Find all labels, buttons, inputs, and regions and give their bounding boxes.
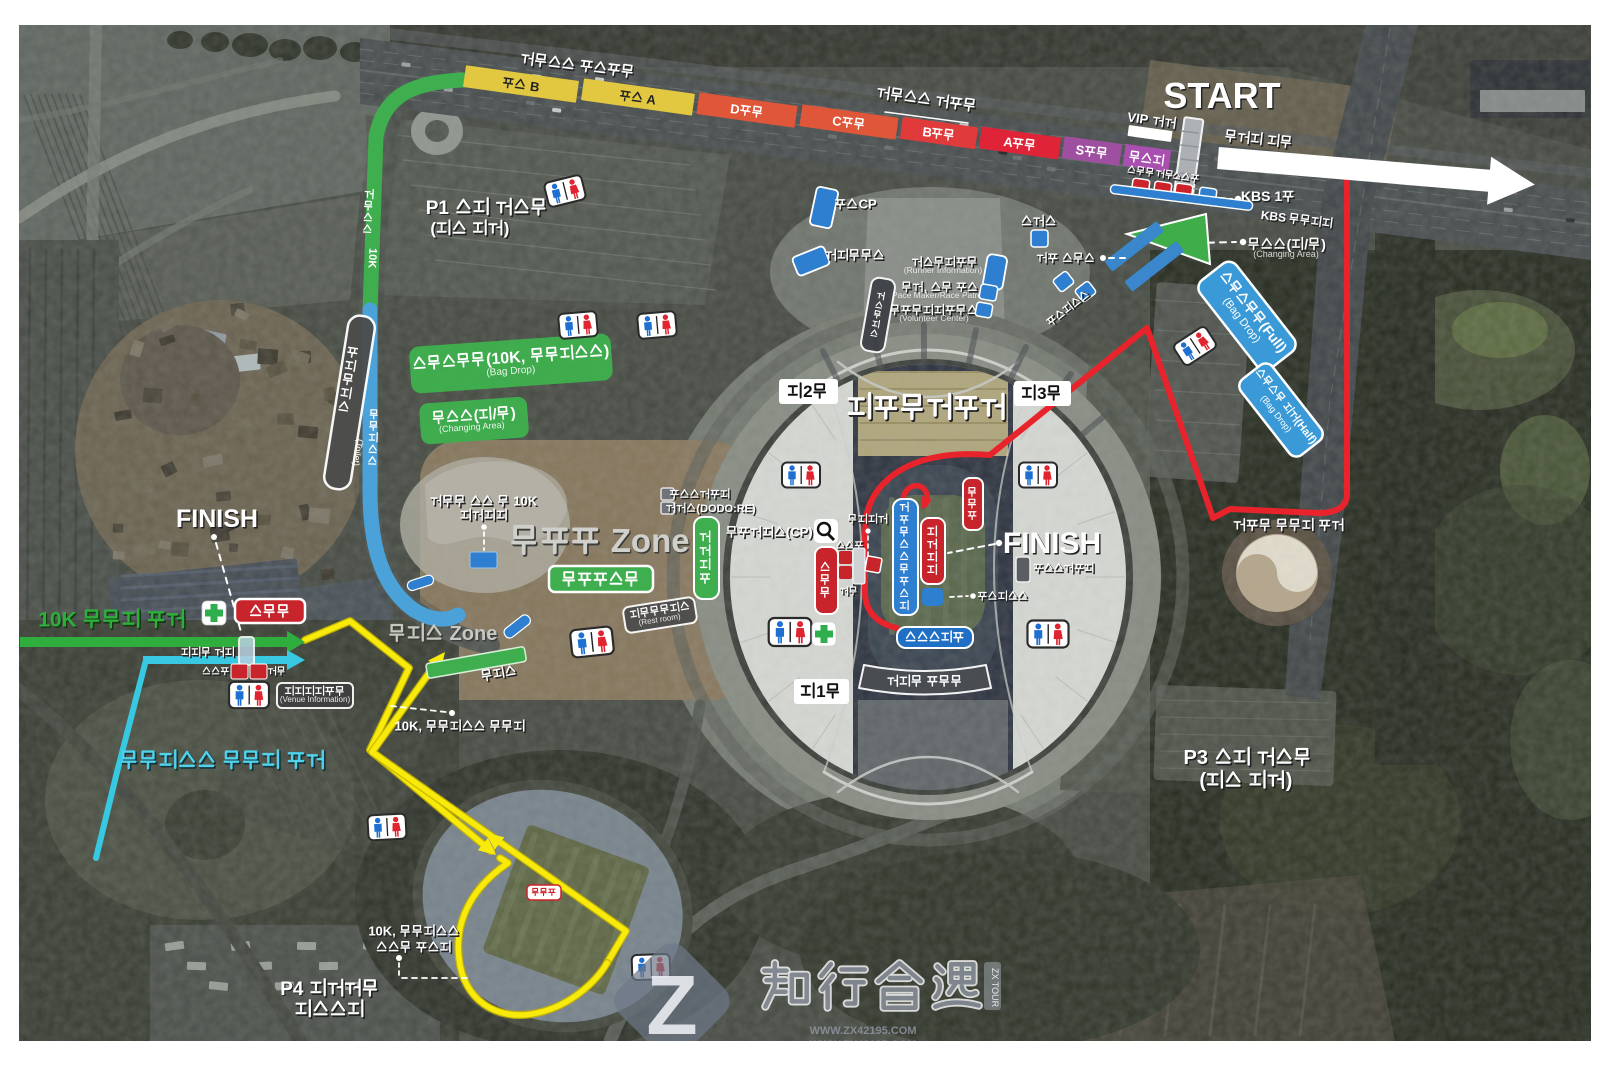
svg-text:10K,: 10K, — [368, 924, 399, 939]
svg-text:(Pace Maker/Race Patrol): (Pace Maker/Race Patrol) — [889, 290, 987, 300]
svg-text:(Runner Information): (Runner Information) — [904, 265, 983, 275]
svg-text:): ) — [1321, 236, 1326, 252]
svg-text:Zone: Zone — [444, 623, 497, 645]
svg-text:(Venue Information): (Venue Information) — [280, 695, 351, 704]
svg-text:WWW.ZX42195.COM: WWW.ZX42195.COM — [810, 1039, 917, 1051]
svg-text:2: 2 — [803, 382, 812, 401]
svg-text:10K: 10K — [365, 248, 378, 269]
svg-text:(: ( — [430, 219, 436, 238]
svg-text:10K: 10K — [38, 609, 82, 632]
svg-text:P4: P4 — [280, 979, 309, 1000]
svg-text:(DODO:RE): (DODO:RE) — [696, 503, 756, 515]
svg-text:FINISH: FINISH — [1003, 527, 1101, 560]
svg-text:): ) — [1286, 770, 1293, 792]
svg-text:(CP): (CP) — [786, 525, 813, 540]
svg-text:WWW.ZX42195.COM: WWW.ZX42195.COM — [810, 1025, 917, 1037]
svg-text:CP: CP — [859, 197, 877, 212]
svg-text:FINISH: FINISH — [176, 505, 258, 533]
svg-text:3: 3 — [1037, 384, 1046, 403]
svg-text:1: 1 — [816, 682, 825, 701]
svg-text:): ) — [504, 219, 510, 238]
svg-text:10K: 10K — [510, 494, 538, 509]
svg-text:ZX TOUR: ZX TOUR — [990, 968, 1000, 1008]
svg-text:(: ( — [1199, 770, 1206, 792]
svg-text:Zone: Zone — [602, 522, 690, 559]
svg-text:P3: P3 — [1184, 747, 1214, 769]
svg-text:B: B — [525, 78, 540, 95]
svg-text:(Changing Area): (Changing Area) — [1253, 249, 1319, 259]
svg-text:START: START — [1163, 75, 1280, 116]
svg-text:(Volunteer Center): (Volunteer Center) — [899, 313, 969, 323]
svg-text:10K,: 10K, — [395, 719, 426, 734]
svg-text:Z: Z — [646, 958, 697, 1052]
svg-text:P1: P1 — [426, 198, 455, 219]
